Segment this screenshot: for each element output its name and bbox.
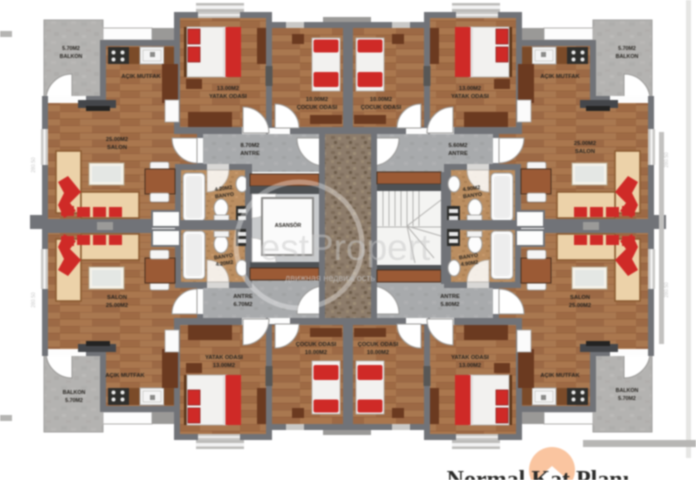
svg-text:5.70M2: 5.70M2 (65, 398, 83, 404)
svg-text:8.70M2: 8.70M2 (241, 143, 260, 149)
svg-text:estPropert: estPropert (260, 227, 431, 268)
svg-text:25.00M2: 25.00M2 (106, 137, 128, 143)
svg-text:BALKON: BALKON (616, 54, 639, 60)
svg-text:10.00M2: 10.00M2 (367, 350, 389, 356)
svg-text:YATAK ODASI: YATAK ODASI (205, 355, 243, 361)
svg-text:SALON: SALON (570, 295, 590, 301)
svg-text:ÇOCUK ODASI: ÇOCUK ODASI (296, 342, 337, 348)
svg-text:YATAK ODASI: YATAK ODASI (451, 94, 489, 100)
svg-text:13.00M2: 13.00M2 (459, 86, 481, 92)
svg-text:ANTRE: ANTRE (240, 151, 260, 157)
svg-text:AÇIK MUTFAK: AÇIK MUTFAK (540, 74, 580, 80)
svg-text:10.00M2: 10.00M2 (305, 350, 327, 356)
svg-text:YATAK ODASI: YATAK ODASI (451, 355, 489, 361)
svg-text:ÇOCUK ODASI: ÇOCUK ODASI (358, 342, 399, 348)
svg-text:YATAK ODASI: YATAK ODASI (209, 94, 247, 100)
svg-text:ANTRE: ANTRE (233, 294, 253, 300)
svg-text:6.70M2: 6.70M2 (234, 302, 253, 308)
svg-text:25.00M2: 25.00M2 (574, 141, 596, 147)
svg-text:ANTRE: ANTRE (440, 294, 460, 300)
svg-text:25.00M2: 25.00M2 (106, 303, 128, 309)
svg-text:5.60M2: 5.60M2 (449, 143, 468, 149)
svg-text:280.50: 280.50 (31, 292, 37, 308)
svg-text:5.80M2: 5.80M2 (441, 302, 460, 308)
svg-text:SALON: SALON (107, 145, 127, 151)
svg-text:ÇOCUK ODASI: ÇOCUK ODASI (297, 105, 338, 111)
svg-text:SALON: SALON (107, 295, 127, 301)
svg-text:10.00M2: 10.00M2 (306, 97, 328, 103)
svg-text:SALON: SALON (575, 149, 595, 155)
svg-text:13.00M2: 13.00M2 (213, 363, 235, 369)
svg-text:25.00M2: 25.00M2 (569, 303, 591, 309)
svg-text:BALKON: BALKON (63, 390, 86, 396)
svg-text:280.50: 280.50 (664, 282, 670, 298)
svg-text:13.00M2: 13.00M2 (217, 86, 239, 92)
svg-text:280.50: 280.50 (664, 152, 670, 168)
svg-text:движная недвиж ость: движная недвиж ость (285, 273, 375, 283)
svg-text:10.00M2: 10.00M2 (370, 97, 392, 103)
svg-text:AÇIK MUTFAK: AÇIK MUTFAK (105, 373, 145, 379)
svg-text:ANTRE: ANTRE (448, 151, 468, 157)
svg-text:BALKON: BALKON (616, 388, 639, 394)
svg-text:AÇIK MUTFAK: AÇIK MUTFAK (121, 74, 161, 80)
svg-text:BALKON: BALKON (60, 54, 83, 60)
svg-text:5.70M2: 5.70M2 (618, 46, 636, 52)
svg-text:5.70M2: 5.70M2 (62, 46, 80, 52)
svg-text:Normal Kat Planı: Normal Kat Planı (447, 467, 630, 480)
svg-text:ASANSÖR: ASANSÖR (275, 222, 302, 229)
svg-text:AÇIK MUTFAK: AÇIK MUTFAK (540, 373, 580, 379)
svg-text:280.50: 280.50 (31, 157, 37, 173)
svg-text:13.00M2: 13.00M2 (459, 363, 481, 369)
svg-text:ÇOCUK ODASI: ÇOCUK ODASI (361, 105, 402, 111)
svg-text:5.70M2: 5.70M2 (618, 396, 636, 402)
